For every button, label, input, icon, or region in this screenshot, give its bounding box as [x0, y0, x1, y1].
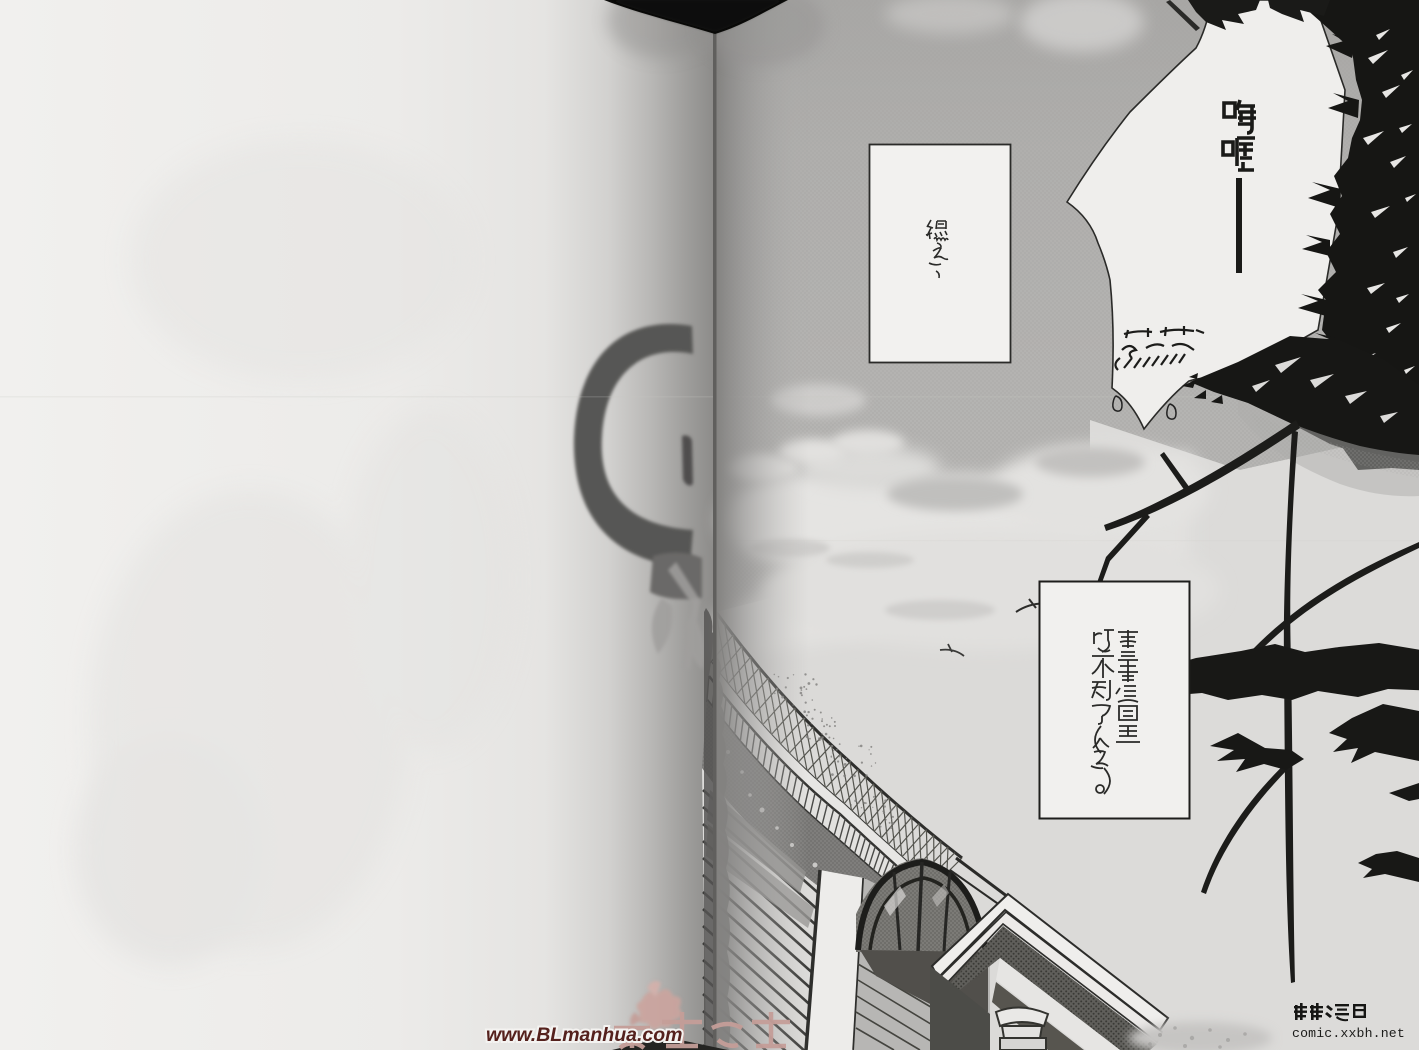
svg-text:comic.xxbh.net: comic.xxbh.net [1292, 1026, 1405, 1041]
svg-text:www.BLmanhua.com: www.BLmanhua.com [486, 1024, 682, 1046]
